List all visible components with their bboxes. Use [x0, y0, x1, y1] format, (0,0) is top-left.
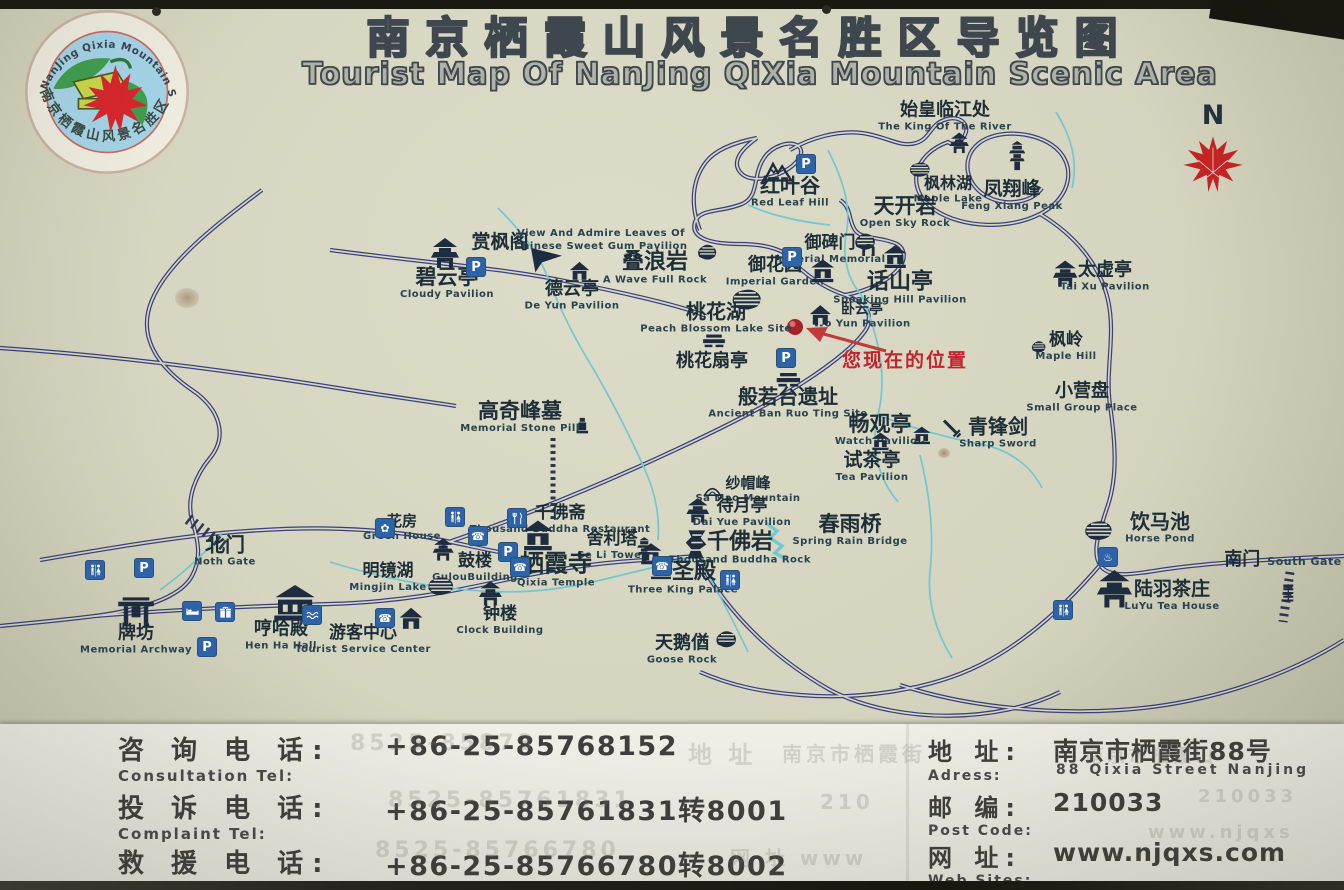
location-name-en: Tourist Service Center	[295, 644, 431, 655]
maple-leaf-compass-icon	[1170, 133, 1256, 209]
map-location: 桃花扇亭	[676, 353, 748, 372]
location-name-en: De Yun Pavilion	[525, 300, 620, 311]
location-name-cn: 天开岩	[860, 195, 951, 217]
rock-icon	[713, 627, 739, 653]
map-location: 天开岩Open Sky Rock	[860, 195, 951, 229]
parking-icon: P	[782, 247, 802, 267]
phone-icon: ☎	[375, 608, 395, 628]
parking-icon: P	[134, 558, 154, 578]
ghost-text: 210	[820, 790, 874, 814]
address-label-cn: 地 址:	[928, 732, 1022, 767]
postcode-value: 210033	[1053, 788, 1163, 817]
ghost-text: 南京市栖霞山	[1085, 742, 1217, 768]
location-name-en: Feng Xiang Peak	[961, 201, 1063, 212]
map-location: 青锋剑Sharp Sword	[959, 417, 1037, 450]
location-name-en: A Wave Full Rock	[603, 275, 707, 286]
photo-bottom-edge	[0, 881, 1344, 890]
lake-icon	[425, 571, 455, 601]
location-name-en: Horse Pond	[1125, 534, 1195, 545]
toilet-icon	[445, 507, 465, 527]
archway-icon	[116, 590, 156, 630]
steps-icon	[1278, 583, 1298, 603]
postcode-label-cn: 邮 编:	[928, 788, 1022, 823]
parking-icon: P	[776, 348, 796, 368]
location-name-cn: 南门	[1224, 551, 1260, 570]
phone-icon: ☎	[510, 557, 530, 577]
location-name-cn: 凤翔峰	[961, 180, 1063, 200]
arch-icon	[859, 239, 877, 257]
location-name-cn: 千佛斋	[470, 505, 650, 523]
ghost-text: 8525-85873	[350, 731, 537, 756]
tower-icon	[1002, 141, 1032, 171]
house-icon	[808, 304, 832, 328]
table-icon	[773, 365, 803, 395]
location-name-cn: 明镜湖	[349, 563, 426, 581]
location-name-en: The King Of The River	[878, 121, 1012, 132]
location-name-en: Qixia Temple	[517, 578, 595, 589]
location-name-cn: 桃花湖	[640, 302, 791, 323]
parking-icon: P	[466, 257, 486, 277]
location-name-en: Tea Pavilion	[835, 472, 908, 483]
tourist-map-sign: NanJing Qixia Mountain Scenic Area 南京栖霞山…	[0, 0, 1344, 890]
grave-icon	[573, 416, 591, 434]
ghost-text: 8525-85761831	[388, 788, 633, 813]
location-name-cn: 陆羽茶庄	[1124, 580, 1219, 600]
website-label-cn: 网 址:	[928, 838, 1022, 873]
location-name-en: LuYu Tea House	[1124, 601, 1219, 612]
bed-icon	[182, 601, 202, 621]
map-location: 高奇峰墓Memorial Stone Pill	[460, 400, 579, 434]
location-name-en: Memorial Stone Pill	[460, 423, 579, 434]
gift-icon	[215, 602, 235, 622]
phone-icon: ☎	[468, 526, 488, 546]
pavilion-icon	[1051, 261, 1079, 289]
location-name-cn: 小营盘	[1026, 383, 1137, 402]
map-location: 枫岭Maple Hill	[1035, 332, 1096, 362]
location-name-cn: 钟楼	[456, 606, 543, 624]
ghost-text: 地 址	[688, 735, 756, 770]
location-name-en: Memorial Archway	[80, 644, 192, 655]
location-name-en: Goose Rock	[647, 654, 717, 665]
pavilion-icon	[685, 498, 711, 524]
house-icon	[398, 606, 424, 632]
map-location: 试茶亭Tea Pavilion	[835, 451, 908, 483]
location-name-cn: 叠浪岩	[603, 250, 707, 273]
map-location: 卧云亭Wo Yun Pavilion	[813, 303, 910, 330]
map-location: 牌坊Memorial Archway	[80, 625, 192, 656]
ghost-text: 8525-85766780	[375, 838, 620, 863]
map-location: 钟楼Clock Building	[456, 606, 543, 636]
temple-icon	[912, 426, 932, 446]
mountain-icon	[763, 155, 793, 185]
location-name-en: Small Group Place	[1026, 402, 1137, 413]
pavilion-icon	[477, 581, 503, 607]
parking-icon: P	[796, 154, 816, 174]
map-location: 始皇临江处The King Of The River	[878, 102, 1012, 133]
flower-icon: ✿	[375, 518, 395, 538]
pavilion-icon	[948, 133, 970, 155]
map-location: 北门Noth Gate	[194, 535, 256, 568]
location-name-en: South Gate	[1267, 555, 1341, 568]
parking-icon: P	[197, 637, 217, 657]
lake-icon	[729, 282, 763, 316]
location-name-en: Red Leaf Hill	[751, 198, 829, 209]
temple-icon	[810, 259, 836, 285]
table-icon	[700, 328, 728, 356]
location-name-cn: 高奇峰墓	[460, 400, 579, 422]
map-location: 陆羽茶庄LuYu Tea House	[1124, 580, 1219, 612]
map-location: 话山亭Speaking Hill Pavilion	[833, 270, 966, 305]
map-location: 游客中心Tourist Service Center	[295, 625, 431, 655]
toilet-icon	[720, 570, 740, 590]
temple-icon	[882, 244, 908, 270]
rock-icon	[695, 240, 719, 264]
location-name-cn: 青锋剑	[959, 417, 1037, 438]
pavilion-icon	[1094, 570, 1134, 610]
compass: N	[1170, 100, 1256, 209]
restaurant-icon	[507, 508, 527, 528]
map-location: 小营盘Small Group Place	[1026, 383, 1137, 414]
map-location: 明镜湖Mingjin Lake	[349, 563, 426, 593]
rock-icon	[1029, 338, 1047, 356]
ghost-text: 网 址 www	[730, 842, 867, 871]
location-name-en: Sharp Sword	[959, 439, 1037, 450]
map-location: 天鹅偤Goose Rock	[647, 635, 717, 666]
location-name-en: Open Sky Rock	[860, 218, 951, 229]
location-name-cn: 试茶亭	[835, 451, 908, 471]
location-name-cn: 北门	[194, 535, 256, 556]
wave-icon	[302, 605, 322, 625]
location-name-cn: 始皇临江处	[878, 102, 1012, 121]
map-location: 南门South Gate	[1224, 550, 1341, 570]
map-location: 待月亭Dai Yue Pavilion	[693, 498, 791, 528]
consultation-tel-label-en: Consultation Tel:	[118, 767, 898, 785]
you-are-here-label: 您现在的位置	[842, 346, 968, 373]
toilet-icon	[85, 560, 105, 580]
lake-icon	[908, 158, 932, 182]
map-location: 叠浪岩A Wave Full Rock	[603, 250, 707, 285]
temple-icon	[870, 432, 890, 452]
location-name-en: Clock Building	[456, 625, 543, 636]
ghost-text: 南京市栖霞街	[782, 738, 926, 767]
lake-icon	[1082, 514, 1114, 546]
location-name-cn: 话山亭	[833, 270, 966, 293]
ghost-text: 210033	[1198, 786, 1297, 807]
location-name-cn: 天鹅偤	[647, 635, 717, 654]
location-name-en: Mingjin Lake	[349, 582, 426, 593]
compass-north-label: N	[1170, 100, 1256, 131]
location-name-en: Noth Gate	[194, 557, 256, 568]
toilet-icon	[1053, 600, 1073, 620]
location-name-cn: 饮马池	[1125, 512, 1195, 533]
house-icon	[569, 261, 591, 283]
pavilion-icon	[429, 238, 461, 270]
map-location: 凤翔峰Feng Xiang Peak	[961, 180, 1063, 212]
phone-icon: ☎	[652, 556, 672, 576]
location-name-en: Cloudy Pavilion	[400, 289, 494, 300]
map-location: 太虚亭Tai Xu Pavilion	[1060, 262, 1150, 293]
cliff-icon	[681, 529, 711, 559]
fountain-icon: ♨	[1098, 547, 1118, 567]
map-location: 红叶谷Red Leaf Hill	[751, 176, 829, 209]
map-location: 饮马池Horse Pond	[1125, 512, 1195, 545]
ghost-text: www.njqxs	[1148, 822, 1294, 843]
sword-icon	[941, 418, 963, 440]
